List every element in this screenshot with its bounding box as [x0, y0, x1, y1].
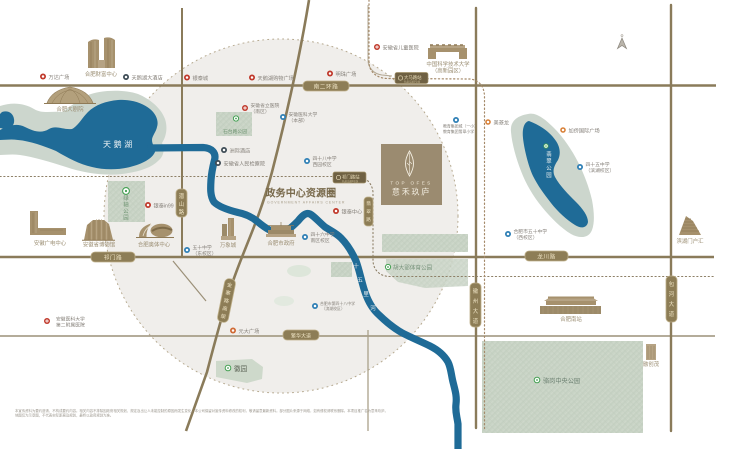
svg-text:四十八中学: 四十八中学: [313, 155, 337, 162]
svg-text:天鹅湖: 天鹅湖: [103, 139, 135, 149]
svg-text:第二附属医院: 第二附属医院: [56, 321, 85, 328]
svg-text:祁门路: 祁门路: [104, 254, 123, 262]
svg-text:安徽省儿童医院: 安徽省儿童医院: [383, 44, 420, 52]
svg-text:合肥财富中心: 合肥财富中心: [85, 70, 118, 78]
svg-text:安徽省立医院: 安徽省立医院: [251, 102, 280, 109]
svg-text:合肥市政府: 合肥市政府: [268, 239, 296, 247]
svg-text:轨道交通3号线: 轨道交通3号线: [404, 79, 420, 83]
svg-text:GOVERNMENT AFFAIRS CENTER: GOVERNMENT AFFAIRS CENTER: [267, 201, 345, 205]
svg-text:合肥大剧院: 合肥大剧院: [57, 105, 85, 113]
svg-text:合肥市五十中学: 合肥市五十中学: [514, 228, 548, 235]
svg-text:天鹅湖大酒店: 天鹅湖大酒店: [132, 74, 163, 82]
svg-text:安徽医科大学: 安徽医科大学: [56, 316, 85, 323]
svg-text:地图仅为示意图，不代表实际距离及规划，最终以政府规划为准。: 地图仅为示意图，不代表实际距离及规划，最终以政府规划为准。: [15, 413, 113, 418]
svg-text:四十五中学: 四十五中学: [586, 161, 610, 168]
svg-text:（西校区）: （西校区）: [514, 234, 538, 241]
svg-text:翡翠公园: 翡翠公园: [546, 150, 552, 179]
svg-text:天鹅湖购物广场: 天鹅湖购物广场: [258, 74, 294, 82]
svg-text:教育集团城（一小）: 教育集团城（一小）: [443, 124, 478, 129]
svg-text:安徽省博物馆: 安徽省博物馆: [83, 241, 116, 249]
svg-text:安徽广电中心: 安徽广电中心: [34, 239, 67, 247]
svg-text:徽园: 徽园: [234, 364, 248, 373]
svg-text:安徽省人民检察院: 安徽省人民检察院: [224, 160, 266, 168]
svg-text:繁华大道: 繁华大道: [291, 333, 311, 340]
svg-text:万达广场: 万达广场: [49, 73, 70, 81]
svg-text:加侨国际广场: 加侨国际广场: [569, 127, 600, 135]
svg-text:洲际酒店: 洲际酒店: [230, 147, 251, 155]
svg-text:（东校区）: （东校区）: [193, 250, 217, 257]
svg-text:融创茂: 融创茂: [643, 360, 660, 368]
svg-text:绿轴公园: 绿轴公园: [123, 194, 129, 222]
svg-text:合肥南站: 合肥南站: [560, 315, 582, 323]
svg-text:石台路公园: 石台路公园: [223, 128, 247, 135]
svg-text:四十六中学: 四十六中学: [311, 231, 335, 238]
svg-text:美菱龙: 美菱龙: [494, 119, 510, 127]
svg-text:滨湖门户汇: 滨湖门户汇: [677, 237, 705, 245]
svg-text:银泰城: 银泰城: [193, 74, 209, 82]
svg-text:潜山路: 潜山路: [179, 192, 185, 216]
svg-text:南二环路: 南二环路: [314, 83, 339, 91]
svg-text:明珠广场: 明珠广场: [336, 70, 357, 78]
svg-text:（南区）: （南区）: [251, 108, 270, 115]
svg-text:翡翠路: 翡翠路: [366, 200, 371, 223]
svg-text:安徽医科大学: 安徽医科大学: [289, 111, 318, 118]
svg-text:（高新园区）: （高新园区）: [432, 67, 464, 75]
svg-text:五十中学: 五十中学: [193, 244, 212, 251]
svg-text:教育集团翡翠小学: 教育集团翡翠小学: [443, 129, 474, 134]
svg-text:西园校区: 西园校区: [313, 161, 332, 168]
svg-text:胡大郢体育公园: 胡大郢体育公园: [393, 264, 433, 272]
svg-text:银泰中心: 银泰中心: [342, 208, 363, 216]
svg-text:（滨湖校区）: （滨湖校区）: [322, 306, 345, 311]
svg-text:轨道交通4号线: 轨道交通4号线: [342, 179, 358, 183]
svg-text:（滨湖校区）: （滨湖校区）: [586, 167, 615, 174]
svg-text:龙川路: 龙川路: [537, 253, 556, 261]
svg-text:元大广场: 元大广场: [239, 327, 260, 335]
svg-text:骆岗中央公园: 骆岗中央公园: [543, 377, 580, 385]
svg-text:合肥奥体中心: 合肥奥体中心: [138, 241, 171, 249]
svg-text:（本部）: （本部）: [289, 117, 308, 124]
svg-text:政务中心资源圈: 政务中心资源圈: [266, 187, 337, 200]
svg-text:TOP OFES: TOP OFES: [390, 181, 432, 186]
svg-text:万象城: 万象城: [220, 241, 237, 249]
svg-text:本宣传资料为要约邀请，不构成要约内容。相关内容不排除因政府相: 本宣传资料为要约邀请，不构成要约内容。相关内容不排除因政府相关规划、规定及出让人…: [15, 408, 388, 413]
svg-text:南区校区: 南区校区: [311, 237, 330, 244]
svg-text:银泰in99: 银泰in99: [154, 202, 174, 210]
svg-text:意禾玖庐: 意禾玖庐: [392, 187, 431, 197]
svg-text:中国科学技术大学: 中国科学技术大学: [426, 60, 470, 68]
